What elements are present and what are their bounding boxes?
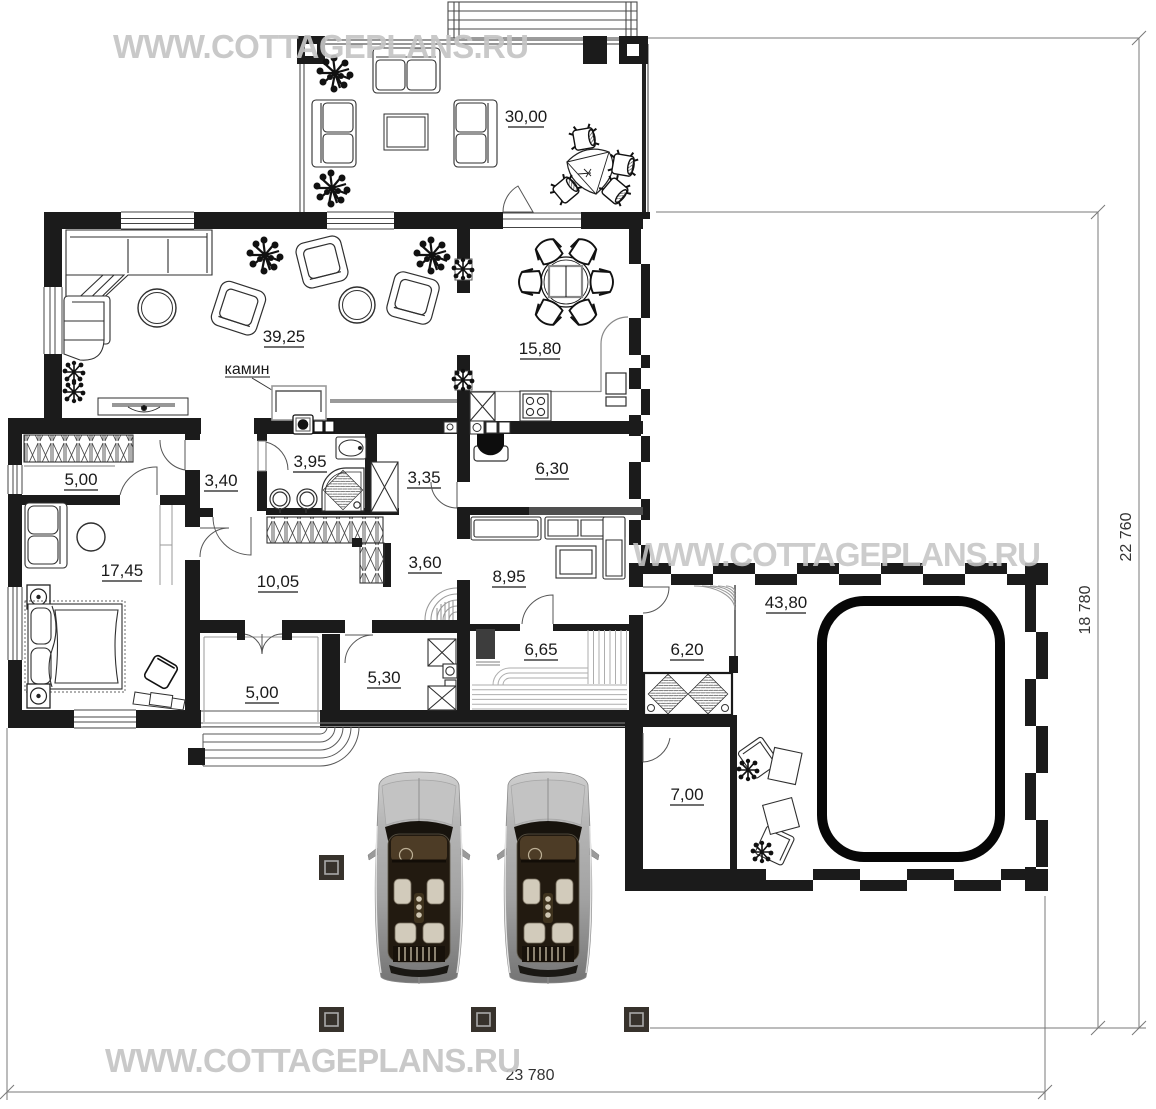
- svg-text:7,00: 7,00: [670, 785, 703, 804]
- svg-text:39,25: 39,25: [263, 327, 306, 346]
- svg-text:22 760: 22 760: [1118, 512, 1135, 561]
- svg-text:3,60: 3,60: [408, 553, 441, 572]
- svg-text:3,35: 3,35: [407, 468, 440, 487]
- svg-text:камин: камин: [224, 361, 269, 378]
- svg-text:18 780: 18 780: [1077, 585, 1094, 634]
- svg-text:5,30: 5,30: [367, 668, 400, 687]
- svg-text:5,00: 5,00: [64, 470, 97, 489]
- svg-text:43,80: 43,80: [765, 593, 808, 612]
- svg-text:8,95: 8,95: [492, 567, 525, 586]
- svg-text:6,30: 6,30: [535, 459, 568, 478]
- svg-text:3,40: 3,40: [204, 471, 237, 490]
- svg-text:WWW.COTTAGEPLANS.RU: WWW.COTTAGEPLANS.RU: [633, 536, 1042, 573]
- svg-text:6,65: 6,65: [524, 640, 557, 659]
- svg-text:6,20: 6,20: [670, 640, 703, 659]
- svg-text:17,45: 17,45: [101, 561, 144, 580]
- svg-text:WWW.COTTAGEPLANS.RU: WWW.COTTAGEPLANS.RU: [113, 28, 530, 65]
- svg-text:3,95: 3,95: [293, 452, 326, 471]
- svg-text:30,00: 30,00: [505, 107, 548, 126]
- svg-text:5,00: 5,00: [245, 683, 278, 702]
- svg-text:WWW.COTTAGEPLANS.RU: WWW.COTTAGEPLANS.RU: [105, 1042, 522, 1079]
- svg-text:15,80: 15,80: [519, 339, 562, 358]
- svg-text:10,05: 10,05: [257, 572, 300, 591]
